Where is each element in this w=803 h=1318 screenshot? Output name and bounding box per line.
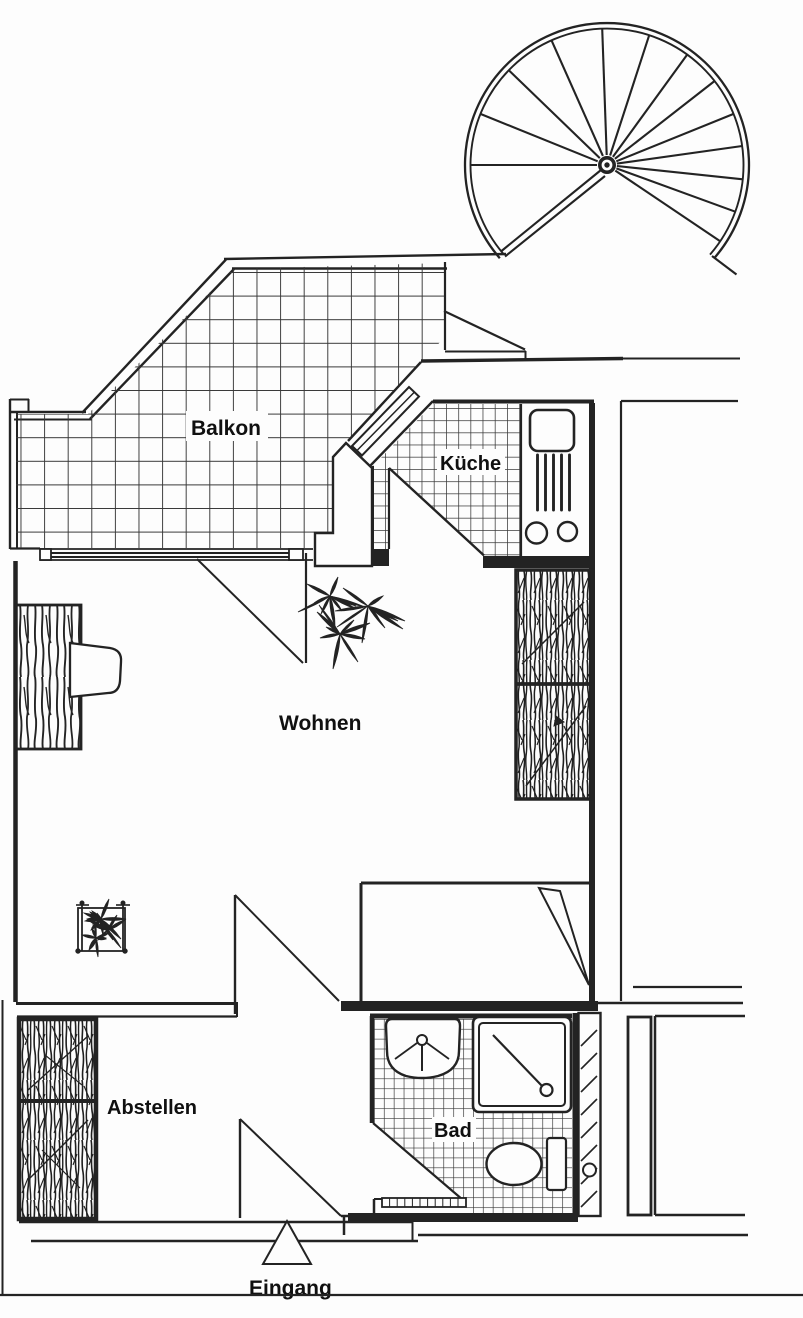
svg-text:Balkon: Balkon bbox=[191, 417, 261, 440]
svg-text:Wohnen: Wohnen bbox=[279, 712, 361, 735]
svg-text:Abstellen: Abstellen bbox=[107, 1097, 197, 1119]
svg-text:Eingang: Eingang bbox=[249, 1277, 332, 1300]
svg-text:Küche: Küche bbox=[440, 453, 501, 475]
svg-text:Bad: Bad bbox=[434, 1120, 472, 1142]
